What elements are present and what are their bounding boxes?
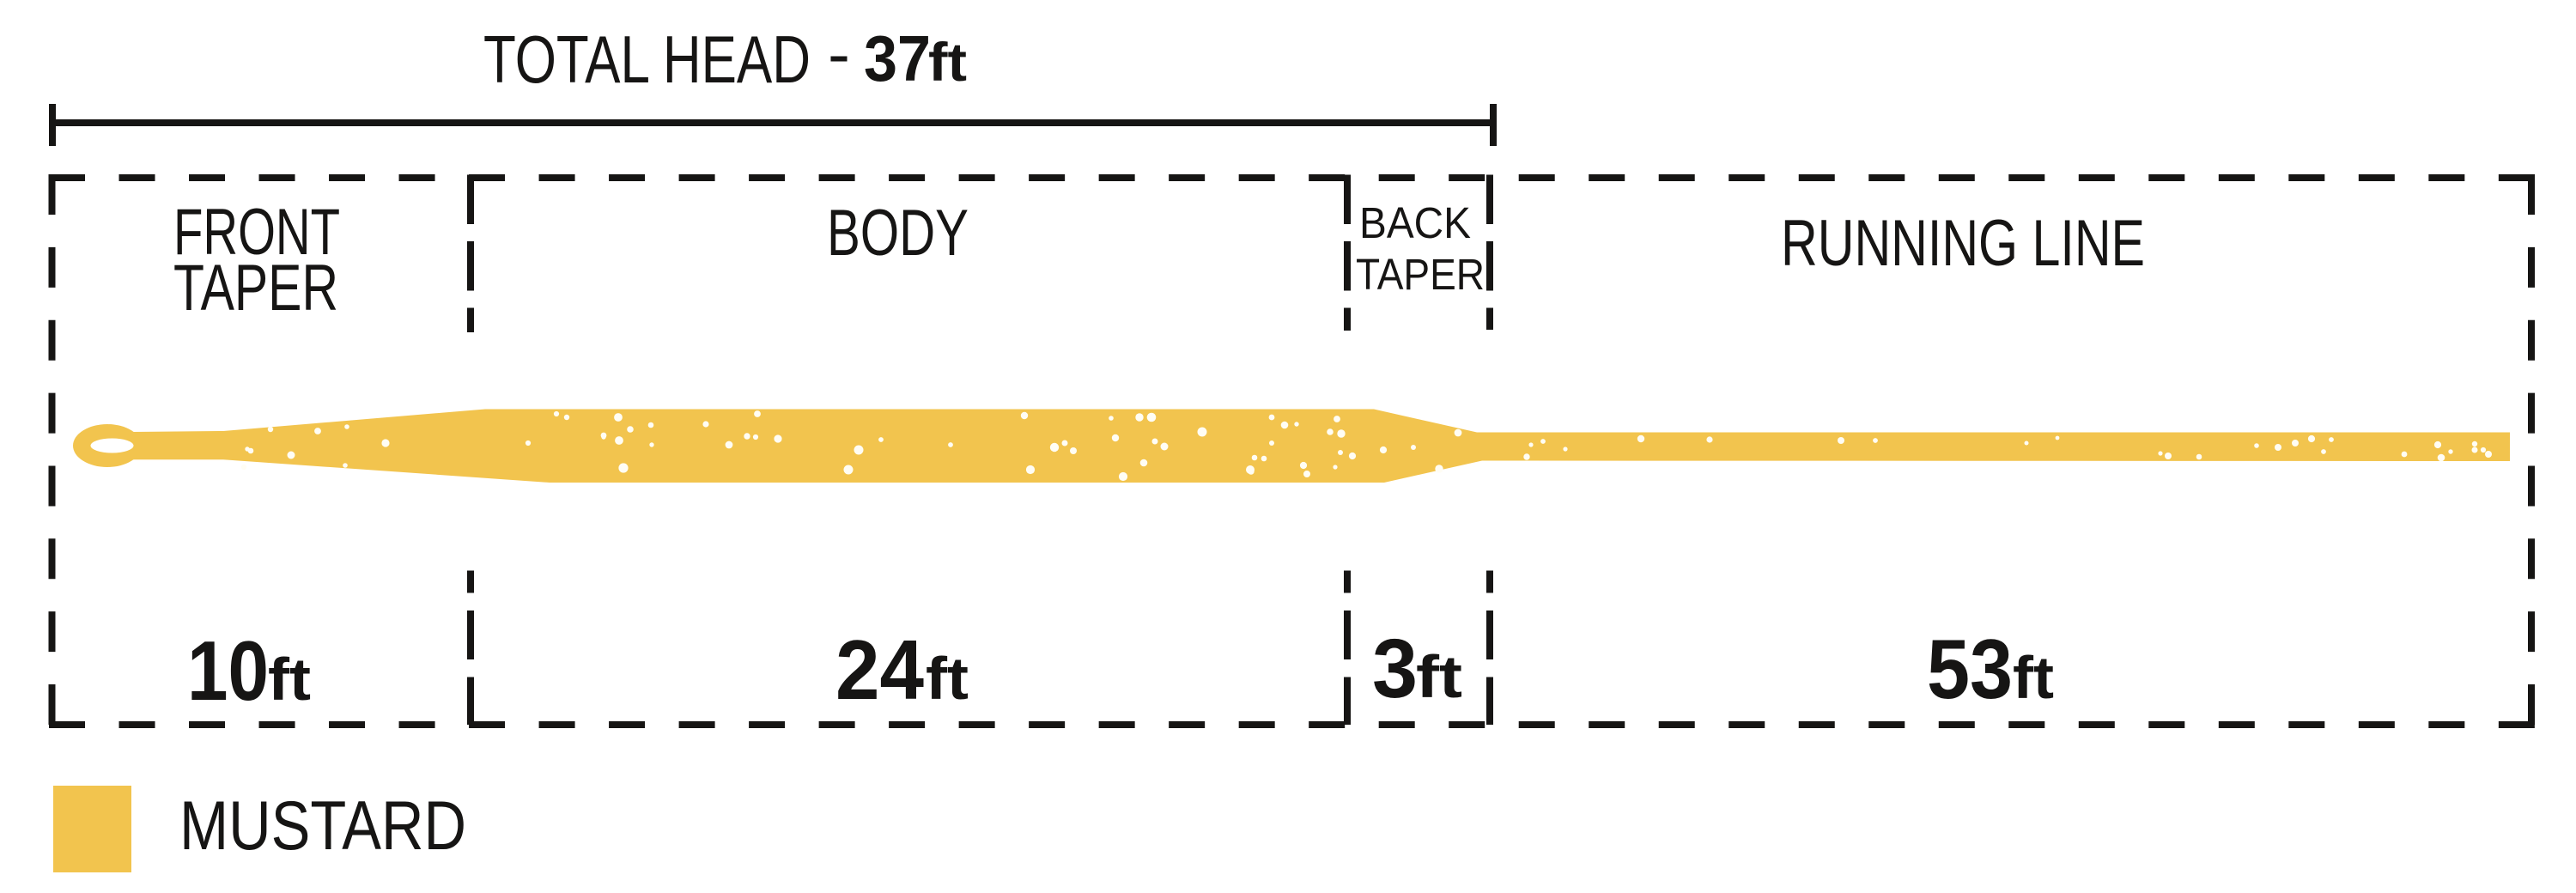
svg-text:3: 3 [1372, 622, 1418, 715]
svg-text:BODY: BODY [827, 197, 969, 270]
svg-text:BACK: BACK [1359, 198, 1471, 247]
svg-text:ft: ft [926, 645, 969, 712]
svg-text:37: 37 [864, 22, 931, 94]
svg-text:TAPER: TAPER [173, 252, 338, 325]
svg-text:-: - [828, 17, 850, 91]
svg-text:TOTAL HEAD: TOTAL HEAD [483, 21, 811, 97]
svg-text:24: 24 [835, 623, 924, 717]
svg-text:53: 53 [1927, 622, 2013, 716]
svg-text:ft: ft [928, 33, 967, 93]
svg-text:ft: ft [268, 646, 311, 713]
svg-text:MUSTARD: MUSTARD [179, 787, 466, 865]
svg-text:10: 10 [187, 623, 269, 718]
svg-text:TAPER: TAPER [1356, 250, 1485, 299]
svg-text:ft: ft [1416, 643, 1462, 710]
svg-text:ft: ft [2013, 644, 2054, 711]
svg-text:RUNNING LINE: RUNNING LINE [1781, 207, 2145, 280]
